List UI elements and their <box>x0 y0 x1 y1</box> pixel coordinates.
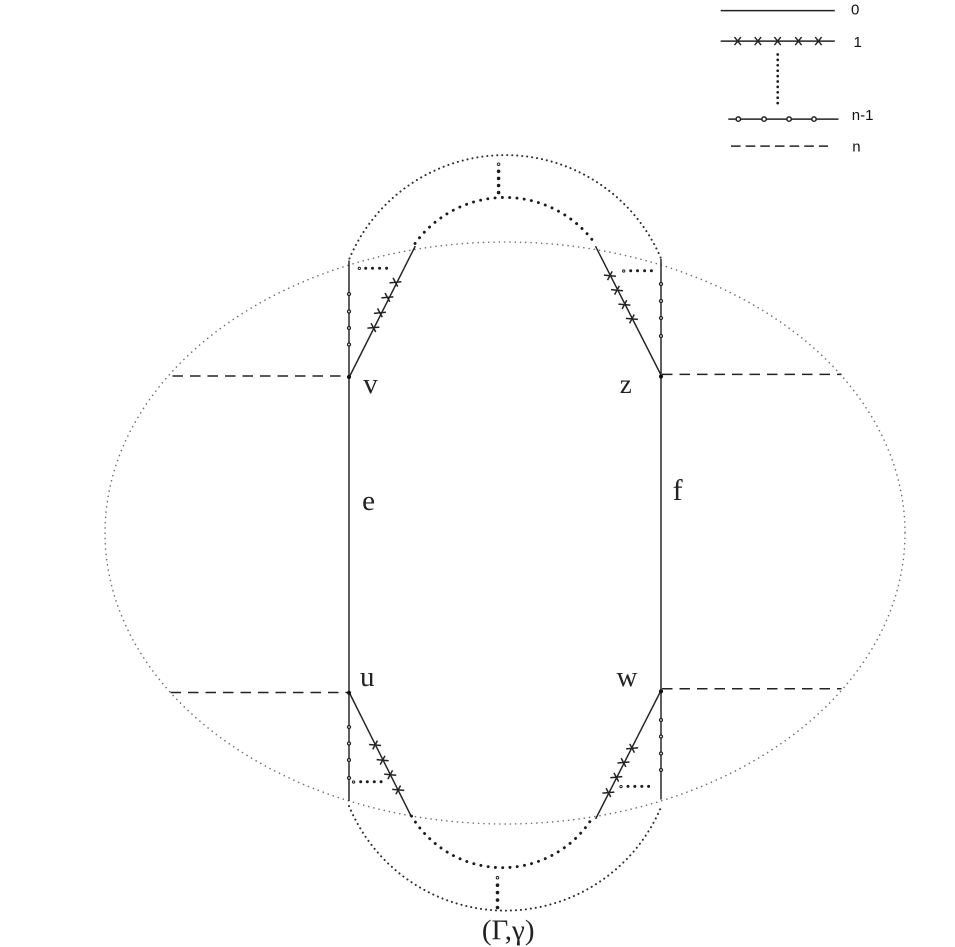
svg-text:e: e <box>362 485 375 517</box>
svg-text:(Γ,γ): (Γ,γ) <box>482 915 535 947</box>
svg-text:v: v <box>363 368 378 400</box>
svg-text:z: z <box>620 369 632 399</box>
svg-text:w: w <box>617 661 638 693</box>
svg-text:1: 1 <box>854 34 862 51</box>
svg-text:n-1: n-1 <box>852 107 874 124</box>
svg-text:n: n <box>852 139 860 156</box>
svg-text:f: f <box>673 474 683 507</box>
svg-text:0: 0 <box>851 2 859 19</box>
svg-text:u: u <box>360 661 375 693</box>
